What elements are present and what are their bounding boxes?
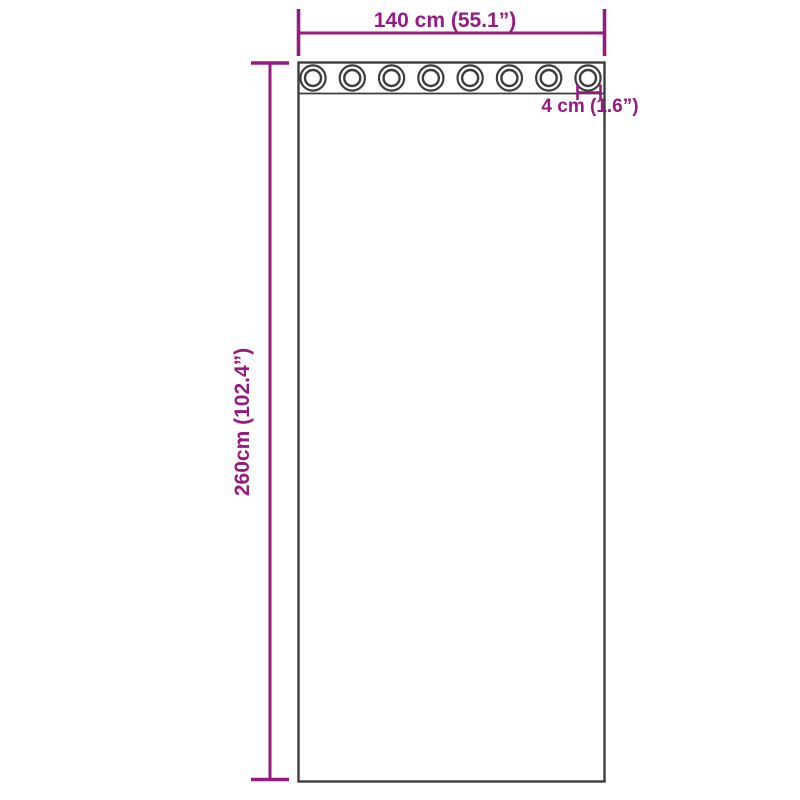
- height-dimension: 260cm (102.4”): [231, 63, 289, 780]
- width-dimension-label: 140 cm (55.1”): [374, 9, 516, 32]
- diagram-canvas: 140 cm (55.1”) 260cm (102.4”) 4 cm (1.6”…: [0, 0, 800, 800]
- dimension-diagram: 140 cm (55.1”) 260cm (102.4”) 4 cm (1.6”…: [0, 0, 800, 800]
- width-dimension: 140 cm (55.1”): [299, 9, 605, 56]
- curtain-panel: [299, 63, 605, 782]
- grommet-dimension-label: 4 cm (1.6”): [541, 96, 638, 117]
- height-dimension-label: 260cm (102.4”): [231, 348, 254, 496]
